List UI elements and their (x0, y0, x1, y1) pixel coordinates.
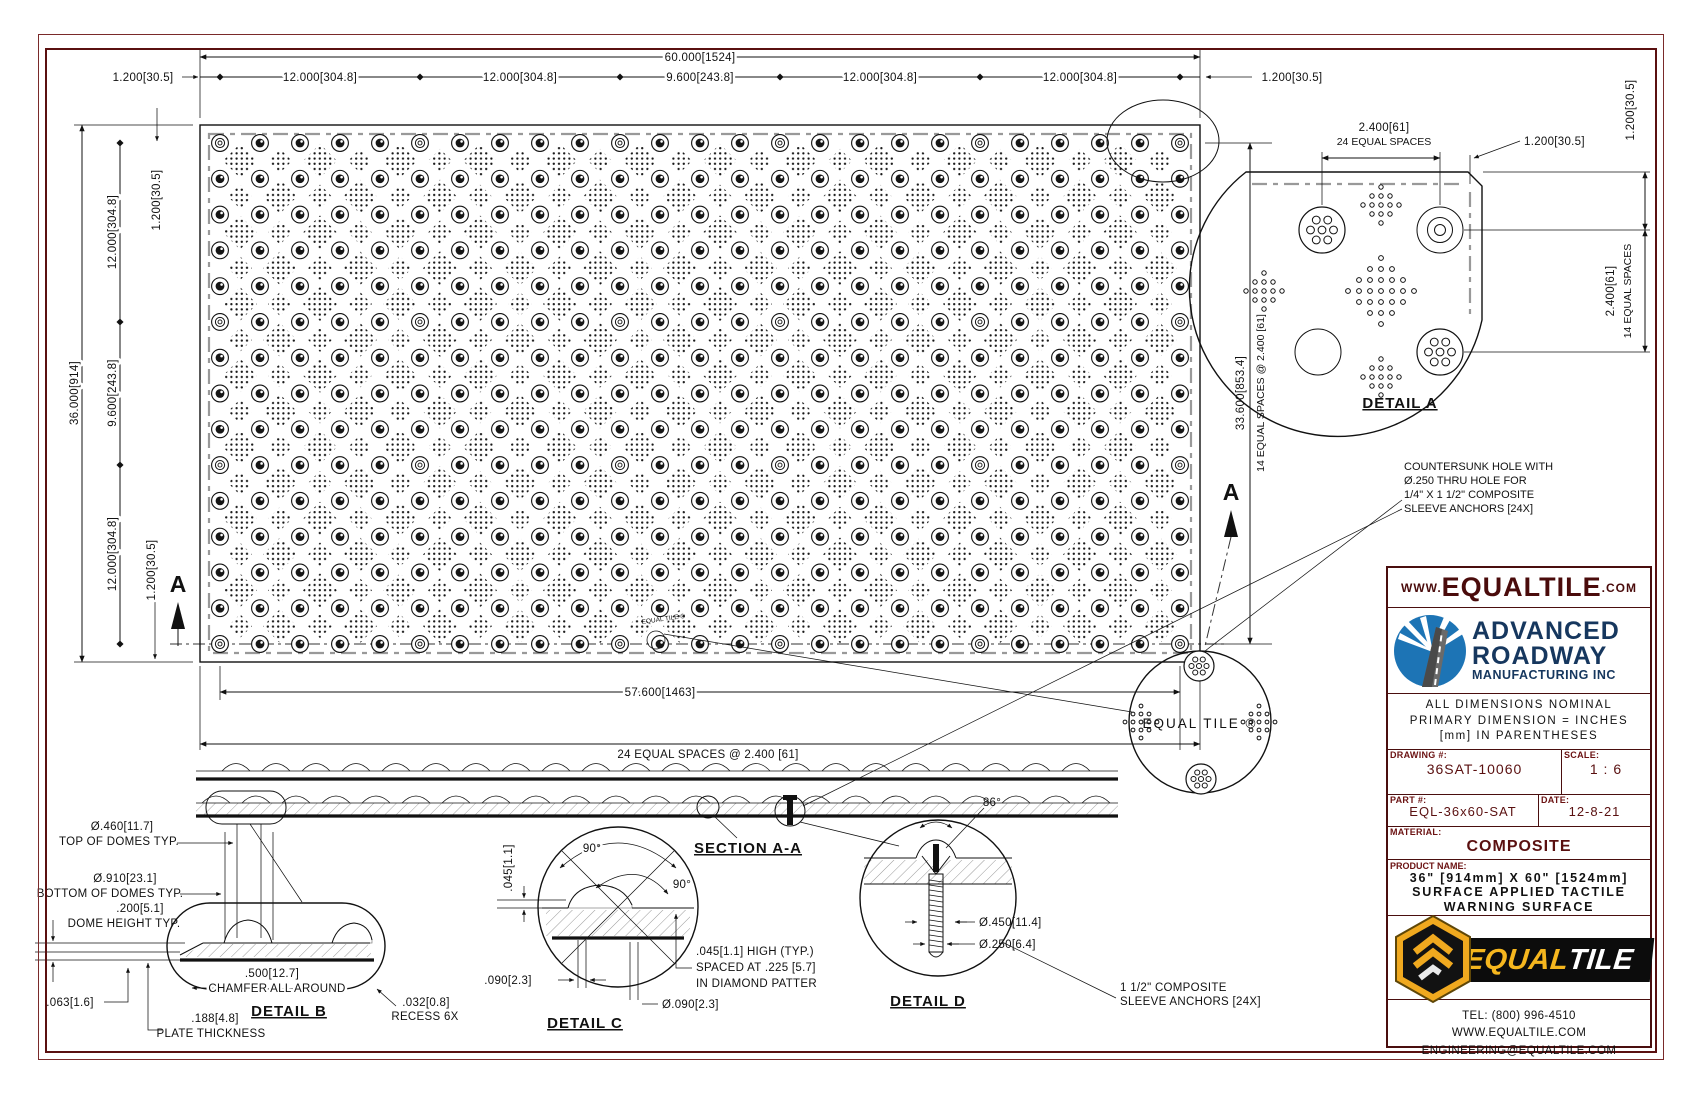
part-number-label: PART #: (1390, 795, 1426, 805)
note-line3: [mm] IN PARENTHESES (1440, 729, 1599, 745)
product-name-label: PRODUCT NAME: (1388, 860, 1650, 871)
product-line3: WARNING SURFACE (1388, 900, 1650, 914)
scale-value: 1 : 6 (1564, 761, 1648, 777)
company-logo-row: ADVANCED ROADWAY MANUFACTURING INC (1388, 608, 1650, 694)
contact-email: ENGINEERING@EQUALTILE.COM (1388, 1043, 1650, 1060)
company-line3: MANUFACTURING INC (1472, 669, 1620, 682)
callout-line1: COUNTERSUNK HOLE WITH (1404, 461, 1554, 475)
date-label: DATE: (1541, 795, 1569, 805)
drawing-number-value: 36SAT-10060 (1390, 761, 1559, 777)
website-prefix: WWW. (1401, 581, 1442, 595)
callout-line4: SLEEVE ANCHORS [24X] (1404, 503, 1554, 517)
title-block: WWW.EQUALTILE.COM ADVANCED ROADWAY M (1386, 566, 1652, 1048)
material-value: COMPOSITE (1390, 838, 1648, 856)
date-cell: DATE: 12-8-21 (1539, 795, 1650, 826)
contact-web: WWW.EQUALTILE.COM (1388, 1025, 1650, 1042)
note-line1: ALL DIMENSIONS NOMINAL (1426, 698, 1613, 714)
scale-cell: SCALE: 1 : 6 (1562, 750, 1650, 794)
dimension-notes: ALL DIMENSIONS NOMINAL PRIMARY DIMENSION… (1388, 694, 1650, 750)
drawing-number-cell: DRAWING #: 36SAT-10060 (1388, 750, 1562, 794)
countersunk-callout: COUNTERSUNK HOLE WITH Ø.250 THRU HOLE FO… (1404, 461, 1554, 517)
date-value: 12-8-21 (1541, 804, 1648, 819)
title-block-website: WWW.EQUALTILE.COM (1388, 568, 1650, 608)
product-line2: SURFACE APPLIED TACTILE (1388, 885, 1650, 899)
part-number-value: EQL-36x60-SAT (1390, 804, 1536, 819)
brand-tile-text: TILE (1567, 944, 1635, 977)
callout-line3: 1/4" X 1 1/2" COMPOSITE (1404, 489, 1554, 503)
website-suffix: .COM (1602, 581, 1637, 595)
website-main: EQUALTILE (1442, 572, 1602, 603)
material-label: MATERIAL: (1390, 827, 1442, 837)
callout-line2: Ø.250 THRU HOLE FOR (1404, 475, 1554, 489)
scale-label: SCALE: (1564, 750, 1599, 760)
roadway-logo-icon (1392, 613, 1468, 689)
contact-tel: TEL: (800) 996-4510 (1388, 1008, 1650, 1025)
equaltile-brand-row: EQUALTILE (1388, 916, 1650, 1000)
product-line1: 36" [914mm] X 60" [1524mm] (1388, 871, 1650, 885)
drawing-sheet: EQUAL TILE ® 60.000[1524] 12.000[304.8] … (0, 0, 1700, 1100)
material-cell: MATERIAL: COMPOSITE (1388, 827, 1650, 860)
product-name-cell: PRODUCT NAME: 36" [914mm] X 60" [1524mm]… (1388, 860, 1650, 916)
contact-info: TEL: (800) 996-4510 WWW.EQUALTILE.COM EN… (1388, 1000, 1650, 1060)
drawing-number-label: DRAWING #: (1390, 750, 1447, 760)
part-number-cell: PART #: EQL-36x60-SAT (1388, 795, 1539, 826)
company-line2: ROADWAY (1472, 644, 1620, 669)
company-line1: ADVANCED (1472, 619, 1620, 644)
note-line2: PRIMARY DIMENSION = INCHES (1410, 714, 1629, 730)
equaltile-hexagon-icon (1390, 914, 1476, 1004)
brand-equal-text: EQUAL (1463, 944, 1570, 977)
